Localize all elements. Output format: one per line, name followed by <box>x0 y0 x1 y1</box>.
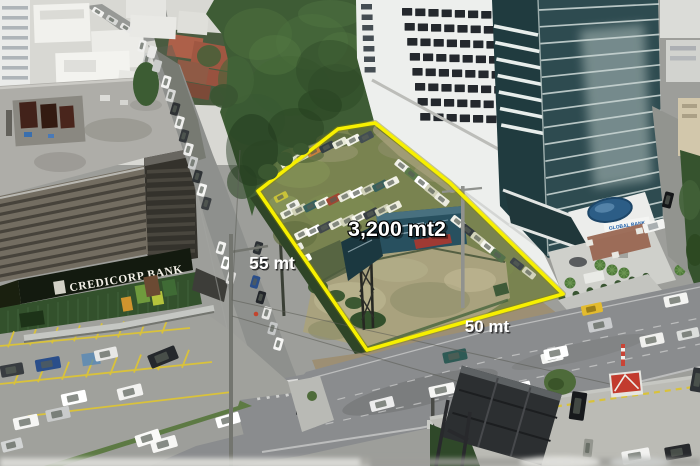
svg-text:55 mt: 55 mt <box>249 253 295 273</box>
svg-text:3,200 mt2: 3,200 mt2 <box>348 217 446 241</box>
svg-text:50 mt: 50 mt <box>465 317 510 336</box>
